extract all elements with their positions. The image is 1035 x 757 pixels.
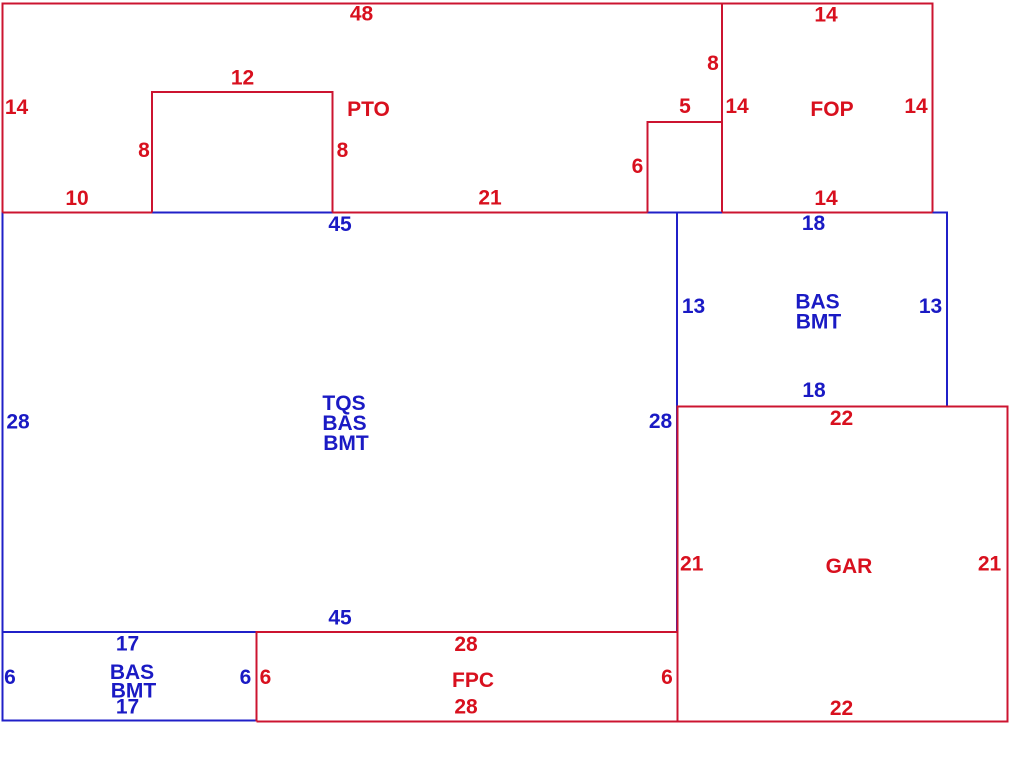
- svg-text:6: 6: [4, 666, 16, 689]
- svg-text:13: 13: [682, 295, 705, 318]
- svg-text:FPC: FPC: [452, 669, 494, 692]
- svg-text:5: 5: [679, 95, 691, 118]
- svg-text:17: 17: [116, 696, 139, 719]
- svg-text:8: 8: [138, 139, 150, 162]
- svg-text:14: 14: [5, 96, 29, 119]
- svg-text:17: 17: [116, 633, 139, 656]
- svg-text:6: 6: [661, 666, 673, 689]
- svg-text:13: 13: [919, 295, 942, 318]
- svg-text:GAR: GAR: [826, 555, 873, 578]
- svg-text:6: 6: [260, 666, 272, 689]
- svg-text:14: 14: [814, 187, 838, 210]
- svg-text:28: 28: [6, 411, 30, 434]
- svg-text:14: 14: [904, 95, 928, 118]
- svg-text:12: 12: [231, 67, 254, 90]
- svg-text:6: 6: [632, 155, 644, 178]
- svg-text:8: 8: [337, 139, 349, 162]
- svg-text:14: 14: [725, 95, 749, 118]
- svg-text:21: 21: [680, 553, 704, 576]
- svg-text:45: 45: [328, 213, 352, 236]
- svg-text:8: 8: [707, 52, 719, 75]
- svg-text:48: 48: [350, 3, 374, 26]
- svg-text:28: 28: [649, 410, 673, 433]
- svg-text:14: 14: [814, 4, 838, 27]
- svg-text:FOP: FOP: [810, 98, 853, 121]
- svg-text:6: 6: [240, 666, 252, 689]
- svg-text:BMT: BMT: [323, 432, 369, 455]
- svg-text:10: 10: [65, 187, 88, 210]
- svg-text:BMT: BMT: [796, 311, 842, 334]
- svg-text:28: 28: [454, 696, 478, 719]
- svg-text:21: 21: [478, 187, 502, 210]
- svg-text:21: 21: [978, 553, 1002, 576]
- svg-text:18: 18: [802, 379, 826, 402]
- svg-text:22: 22: [830, 407, 853, 430]
- svg-text:28: 28: [454, 633, 478, 656]
- svg-text:18: 18: [802, 212, 826, 235]
- svg-text:PTO: PTO: [347, 98, 390, 121]
- svg-text:22: 22: [830, 697, 853, 720]
- svg-text:45: 45: [328, 607, 352, 630]
